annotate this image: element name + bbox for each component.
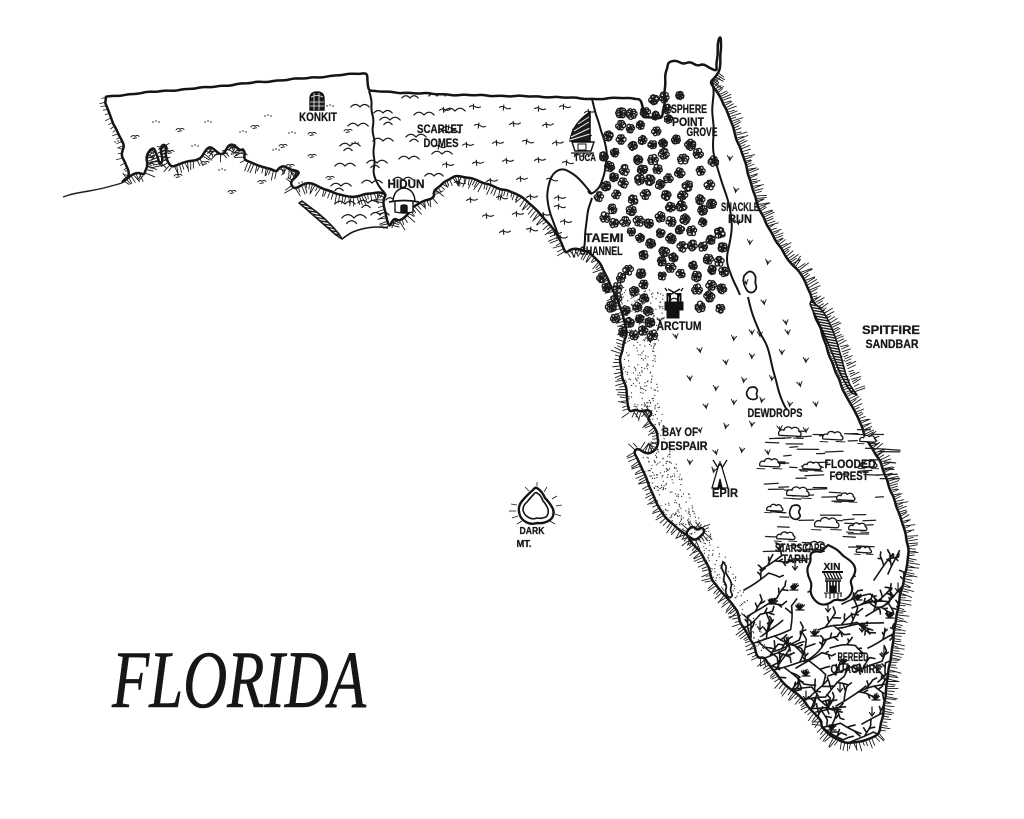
svg-text:DARK: DARK — [520, 526, 546, 537]
svg-text:HIDUN: HIDUN — [388, 179, 425, 191]
svg-text:SCARLET: SCARLET — [417, 124, 463, 136]
svg-text:SPHERE: SPHERE — [671, 104, 707, 116]
svg-text:FLOODED: FLOODED — [825, 459, 876, 471]
svg-text:RUN: RUN — [728, 214, 752, 226]
svg-text:FOREST: FOREST — [830, 471, 869, 483]
svg-text:DESPAIR: DESPAIR — [661, 441, 709, 453]
svg-text:SHACKLE: SHACKLE — [721, 202, 759, 214]
svg-text:XIN: XIN — [824, 562, 841, 573]
svg-text:KONKIT: KONKIT — [299, 112, 337, 124]
svg-text:CHANNEL: CHANNEL — [580, 246, 623, 258]
svg-text:BAY OF: BAY OF — [662, 427, 698, 439]
svg-text:TAEMI: TAEMI — [585, 233, 624, 245]
svg-text:REREED: REREED — [838, 652, 869, 664]
svg-text:TUCA: TUCA — [574, 153, 596, 164]
svg-text:ARCTUM: ARCTUM — [657, 321, 702, 333]
svg-text:TARN: TARN — [782, 554, 808, 566]
svg-text:MT.: MT. — [517, 539, 532, 550]
svg-text:EPIR: EPIR — [712, 488, 739, 500]
svg-text:SPITFIRE: SPITFIRE — [862, 325, 920, 337]
svg-text:QUAGMIRE: QUAGMIRE — [831, 664, 882, 676]
svg-text:GROVE: GROVE — [687, 127, 718, 139]
svg-text:DOMES: DOMES — [424, 138, 459, 150]
svg-text:FLORIDA: FLORIDA — [111, 634, 366, 725]
svg-text:DEWDROPS: DEWDROPS — [748, 408, 803, 420]
svg-text:SANDBAR: SANDBAR — [866, 339, 920, 351]
